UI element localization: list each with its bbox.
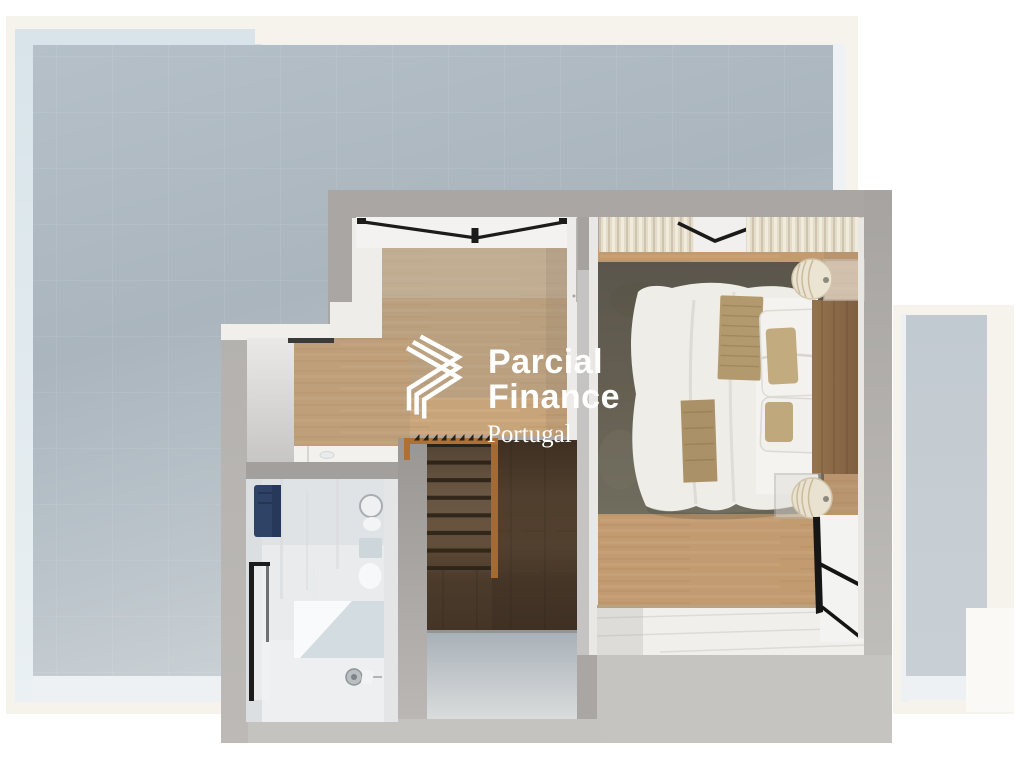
svg-text:Parcial: Parcial [488, 343, 603, 381]
svg-text:Finance: Finance [488, 378, 620, 416]
svg-text:Portugal: Portugal [487, 421, 572, 448]
